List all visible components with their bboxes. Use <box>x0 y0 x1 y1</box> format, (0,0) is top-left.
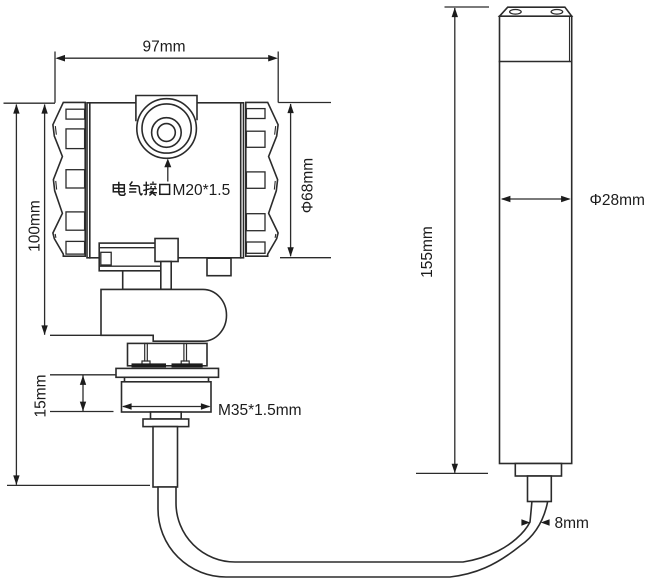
svg-text:M20*1.5: M20*1.5 <box>173 182 231 199</box>
svg-text:155mm: 155mm <box>419 226 436 278</box>
svg-text:M35*1.5mm: M35*1.5mm <box>218 402 302 419</box>
svg-text:100mm: 100mm <box>27 200 44 252</box>
svg-text:15mm: 15mm <box>33 374 50 417</box>
svg-text:97mm: 97mm <box>142 38 185 55</box>
svg-text:Φ68mm: Φ68mm <box>300 158 317 213</box>
svg-text:Φ28mm: Φ28mm <box>590 192 645 209</box>
svg-text:8mm: 8mm <box>555 515 589 532</box>
